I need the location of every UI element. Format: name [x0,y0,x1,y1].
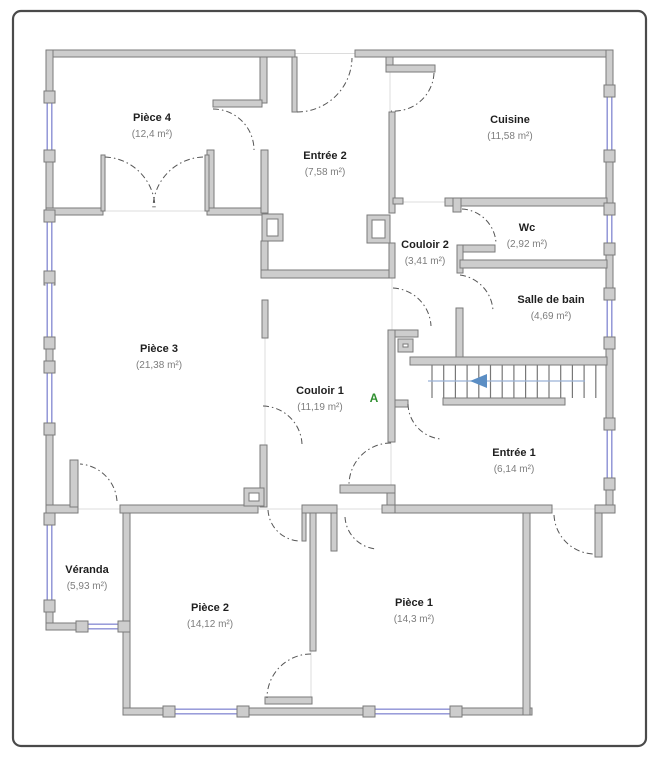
room-area-piece-2: (14,12 m²) [187,619,233,630]
duct-box-inner [403,344,408,347]
window-pier [363,706,375,717]
floor-plan-svg: Pièce 4 (12,4 m²) Entrée 2 (7,58 m²) Cui… [0,0,658,757]
room-area-cuisine: (11,58 m²) [487,131,532,142]
window-pier [44,513,55,525]
floor-plan-page: Pièce 4 (12,4 m²) Entrée 2 (7,58 m²) Cui… [0,0,658,757]
door-leaf [205,155,209,211]
room-area-salle-de-bain: (4,69 m²) [531,311,572,322]
room-area-veranda: (5,93 m²) [67,581,108,592]
wall-segment [213,100,262,107]
room-label-wc: Wc [519,222,536,234]
window-pier [44,600,55,612]
door-leaf [292,57,297,112]
wall-segment [120,505,258,513]
wall-segment [262,300,268,338]
wall-segment [386,65,435,72]
wall-segment [456,308,463,358]
room-label-couloir-1: Couloir 1 [296,385,344,397]
wall-segment [453,198,461,212]
room-area-wc: (2,92 m²) [507,239,548,250]
wall-segment [70,460,78,507]
window-pier [604,478,615,490]
room-area-piece-3: (21,38 m²) [136,360,182,371]
window-pier [44,361,55,373]
window-pier [44,91,55,103]
door-leaf [101,155,105,211]
room-area-entree-2: (7,58 m²) [305,167,346,178]
window-pier [604,288,615,300]
window-pier [604,150,615,162]
wall-segment [523,505,530,715]
room-label-salle-de-bain: Salle de bain [517,294,585,306]
wall-segment [387,493,395,506]
wall-segment [393,198,403,204]
wall-segment [260,57,267,103]
duct-box-inner [249,493,259,501]
wall-segment [207,208,263,215]
window-pier [604,85,615,97]
room-label-piece-4: Pièce 4 [133,112,172,124]
room-label-entree-1: Entrée 1 [492,447,535,459]
wall-segment [595,505,615,513]
wall-segment [302,505,337,513]
room-label-piece-1: Pièce 1 [395,597,433,609]
wall-segment [395,400,408,407]
duct-box-inner [267,219,278,236]
wall-segment [310,513,316,651]
window-pier [44,150,55,162]
wall-segment [445,198,607,206]
window-pier [163,706,175,717]
wall-segment [261,270,395,278]
wall-segment [457,245,463,273]
wall-segment [355,50,613,57]
wall-segment [331,513,337,551]
wall-segment [395,505,552,513]
wall-segment [261,150,268,213]
room-label-piece-3: Pièce 3 [140,343,178,355]
wall-segment [443,398,565,405]
room-area-couloir-1: (11,19 m²) [297,402,342,413]
section-marker-a: A [370,391,379,405]
window-pier [44,337,55,349]
duct-box-inner [372,220,385,238]
plan-border [13,11,646,746]
window-pier [450,706,462,717]
room-label-cuisine: Cuisine [490,114,530,126]
wall-segment [388,330,395,442]
wall-segment [302,513,306,541]
room-area-couloir-2: (3,41 m²) [405,256,446,267]
window-pier [604,337,615,349]
window-pier [44,271,55,283]
wall-segment [265,697,312,704]
room-label-couloir-2: Couloir 2 [401,239,449,251]
room-label-veranda: Véranda [65,564,109,576]
wall-segment [389,243,395,278]
wall-segment [595,513,602,557]
window-pier [76,621,88,632]
wall-segment [123,505,130,715]
window-pier [604,418,615,430]
room-area-piece-1: (14,3 m²) [394,614,435,625]
room-area-piece-4: (12,4 m²) [132,129,173,140]
window-pier [604,203,615,215]
wall-segment [340,485,395,493]
window-pier [44,210,55,222]
room-label-piece-2: Pièce 2 [191,602,229,614]
wall-segment [606,337,613,430]
room-label-entree-2: Entrée 2 [303,150,346,162]
wall-segment [410,357,607,365]
window-pier [237,706,249,717]
wall-segment [460,260,607,268]
room-area-entree-1: (6,14 m²) [494,464,535,475]
wall-segment [46,50,295,57]
window-pier [604,243,615,255]
window-pier [44,423,55,435]
window-pier [118,621,130,632]
wall-segment [382,505,395,513]
